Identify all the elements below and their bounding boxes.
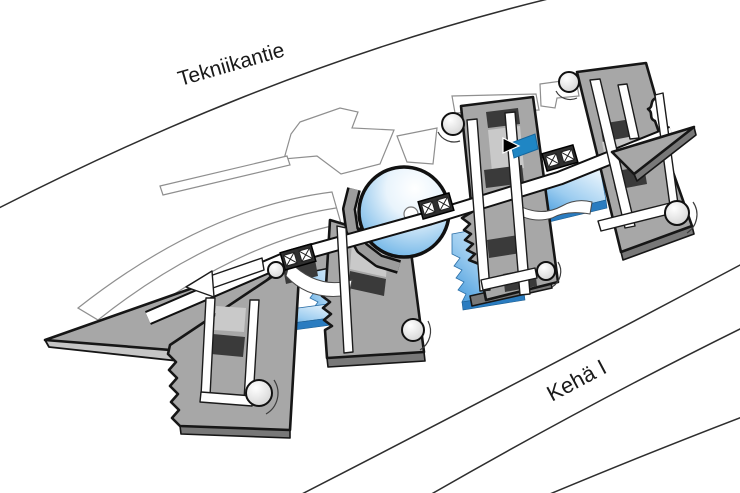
road-label-keha-i: Kehä I [543,354,611,406]
road-keha-line-2 [428,328,740,493]
road-label-tekniikantie: Tekniikantie [175,39,287,91]
context-building-bar [160,156,290,195]
sphere-dome-icon [559,72,579,92]
building-west-block-band [211,334,245,357]
sphere-dome-icon [442,113,464,135]
road-keha-line-3 [545,417,740,493]
sphere-dome-icon [665,201,689,225]
sphere-dome-icon [246,380,272,406]
sphere-dome-icon [402,319,424,341]
building-west-block-inset [214,306,246,332]
context-building-quad [397,128,437,164]
site-map: Tekniikantie Kehä I [0,0,740,493]
context-building-blob [284,108,394,174]
sphere-dome-icon [537,262,555,280]
site-map-canvas: Tekniikantie Kehä I [0,0,740,493]
sphere-dome-icon [268,262,284,278]
